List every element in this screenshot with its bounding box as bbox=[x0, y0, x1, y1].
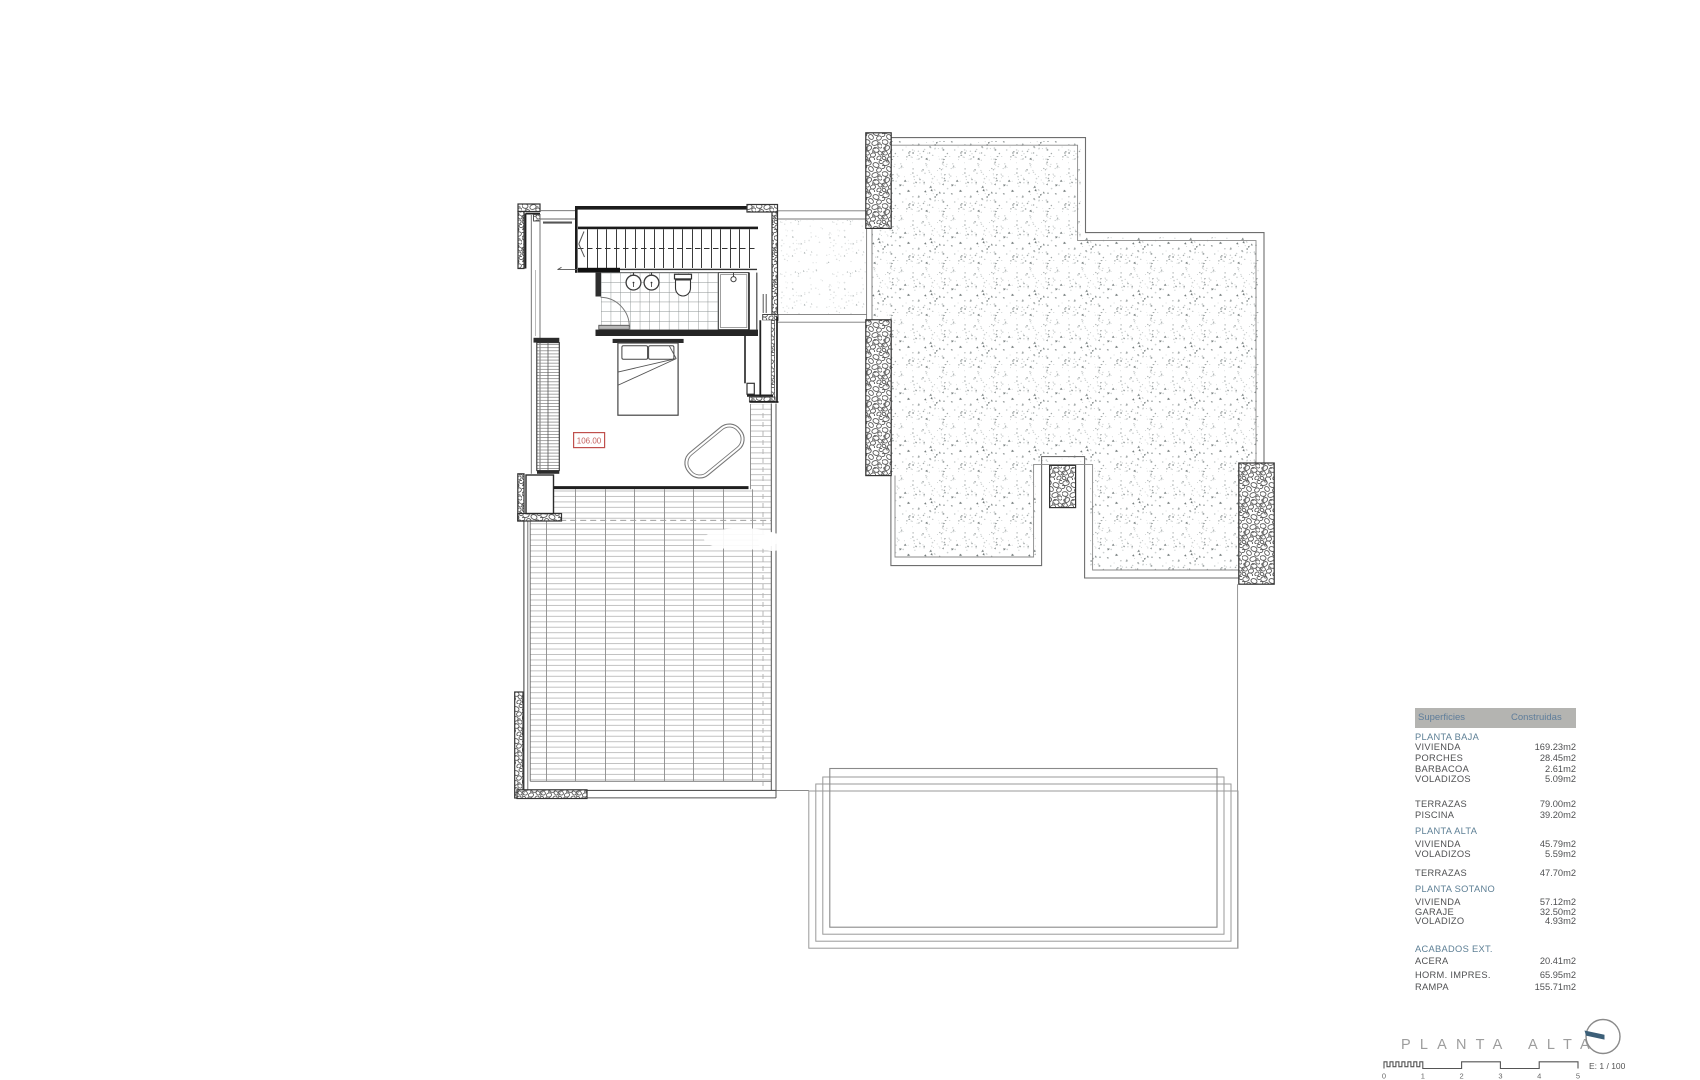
svg-text:0: 0 bbox=[1382, 1072, 1386, 1080]
svg-text:3: 3 bbox=[1498, 1072, 1502, 1080]
svg-text:5: 5 bbox=[1576, 1072, 1580, 1080]
svg-text:PLANTA ALTA: PLANTA ALTA bbox=[1401, 1037, 1599, 1053]
svg-text:E: 1 / 100: E: 1 / 100 bbox=[1589, 1061, 1626, 1071]
svg-text:4: 4 bbox=[1537, 1072, 1541, 1080]
svg-text:2: 2 bbox=[1460, 1072, 1464, 1080]
svg-text:1: 1 bbox=[1421, 1072, 1425, 1080]
svg-text:106.00: 106.00 bbox=[577, 437, 602, 446]
